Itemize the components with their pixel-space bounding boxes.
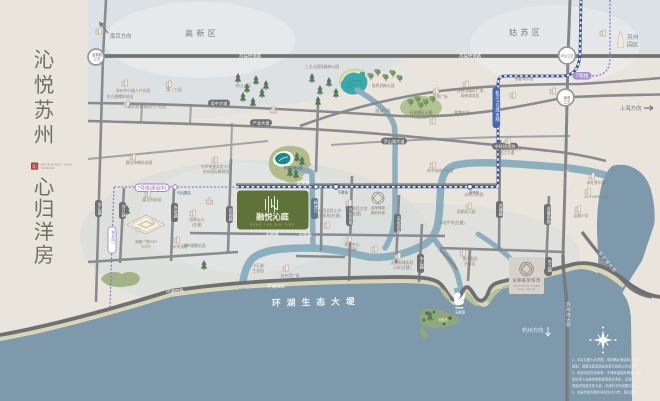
svg-text:水秀天地: 水秀天地 <box>172 244 187 249</box>
svg-text:南京方向: 南京方向 <box>110 32 132 40</box>
svg-text:实验中学(在建): 实验中学(在建) <box>439 220 465 225</box>
svg-text:高新商务区: 高新商务区 <box>461 93 480 98</box>
svg-text:心: 心 <box>34 177 55 199</box>
svg-text:规划、道路及配套信息来源于政府公示文件；: 规划、道路及配套信息来源于政府公示文件； <box>572 364 638 369</box>
svg-text:东吴路: 东吴路 <box>173 204 179 219</box>
svg-text:东山路: 东山路 <box>419 255 425 270</box>
svg-text:吴中站: 吴中站 <box>469 190 480 195</box>
svg-text:尹山立交: 尹山立交 <box>561 53 575 58</box>
svg-text:横山申韩科务园: 横山申韩科务园 <box>126 160 153 165</box>
svg-text:子胥路: 子胥路 <box>298 232 312 239</box>
svg-text:塔韵路: 塔韵路 <box>228 207 234 222</box>
svg-text:JINLING HUICUI YUEWAN: JINLING HUICUI YUEWAN <box>513 285 540 288</box>
svg-text:立交: 立交 <box>94 56 101 61</box>
svg-text:天鹅岛: 天鹅岛 <box>438 317 448 322</box>
svg-text:上方山国家森林公园: 上方山国家森林公园 <box>305 64 339 69</box>
svg-text:太湖新城实验: 太湖新城实验 <box>391 260 414 265</box>
svg-text:府最终批准文件为准；本资料不构成要约内容。: 府最终批准文件为准；本资料不构成要约内容。 <box>572 383 641 388</box>
svg-text:(规划中): (规划中) <box>110 230 115 244</box>
svg-text:吴中大道: 吴中大道 <box>211 100 229 107</box>
svg-text:吴淞南路: 吴淞南路 <box>396 216 402 235</box>
svg-text:第一工园: 第一工园 <box>166 87 181 92</box>
svg-text:HOTEL · RESORT: HOTEL · RESORT <box>517 289 536 291</box>
svg-text:御府世家: 御府世家 <box>371 210 386 215</box>
svg-text:石湖景区公园: 石湖景区公园 <box>410 110 433 115</box>
svg-text:天鹅湖: 天鹅湖 <box>455 310 465 315</box>
svg-text:苏州科技城现代产业园: 苏州科技城现代产业园 <box>128 104 166 109</box>
svg-text:独墅湖公园: 独墅湖公园 <box>515 76 534 81</box>
svg-text:中环快速实验小学: 中环快速实验小学 <box>201 164 232 169</box>
svg-text:(在建): (在建) <box>351 211 362 216</box>
svg-text:苏州国际教育园: 苏州国际教育园 <box>203 169 230 174</box>
svg-text:QINYUE SUZHOU · XINGUI: QINYUE SUZHOU · XINGUI <box>41 164 73 167</box>
svg-text:何山路站: 何山路站 <box>177 190 191 195</box>
svg-text:7号线(建设中): 7号线(建设中) <box>138 185 167 192</box>
svg-text:生态园: 生态园 <box>252 268 264 273</box>
svg-text:苏: 苏 <box>34 99 55 122</box>
svg-text:环湖生态大堤: 环湖生态大堤 <box>272 295 361 308</box>
svg-text:JD·PARK乐园: JD·PARK乐园 <box>584 194 608 199</box>
svg-text:苏州湾实验小学: 苏州湾实验小学 <box>315 208 342 213</box>
svg-text:苏州湾城市广场: 苏州湾城市广场 <box>457 88 484 93</box>
svg-text:(在建): (在建) <box>192 222 203 227</box>
svg-text:7号线: 7号线 <box>576 73 589 80</box>
svg-text:嘉宝科技园: 嘉宝科技园 <box>143 197 162 202</box>
svg-text:苏州湾大桥: 苏州湾大桥 <box>566 301 572 329</box>
svg-text:张桥赏梅公园: 张桥赏梅公园 <box>372 83 395 88</box>
svg-text:归: 归 <box>34 198 55 221</box>
svg-text:子胥路: 子胥路 <box>265 231 279 238</box>
svg-text:迎春南路: 迎春南路 <box>546 205 552 225</box>
svg-text:平星站: 平星站 <box>338 190 349 195</box>
svg-text:银丰惠农: 银丰惠农 <box>462 256 477 261</box>
svg-text:苏福快速路: 苏福快速路 <box>459 53 482 60</box>
svg-text:尚美中心: 尚美中心 <box>344 242 359 247</box>
svg-text:(在建中): (在建中) <box>141 245 151 249</box>
svg-text:上海方向: 上海方向 <box>620 104 642 112</box>
svg-text:儿童医院(在建): 儿童医院(在建) <box>315 213 341 218</box>
svg-text:州: 州 <box>34 125 55 147</box>
svg-text:苏中电商产业园: 苏中电商产业园 <box>427 168 454 173</box>
svg-text:杭州方向: 杭州方向 <box>522 326 544 334</box>
svg-text:沁: 沁 <box>34 49 55 72</box>
svg-text:姑苏区: 姑苏区 <box>509 27 543 37</box>
svg-text:尹山湖大道: 尹山湖大道 <box>384 138 406 145</box>
svg-text:金陵雅郡: 金陵雅郡 <box>371 205 386 210</box>
svg-text:3、本宣传资料制作时间为2023年，敬请留意。: 3、本宣传资料制作时间为2023年，敬请留意。 <box>572 390 641 395</box>
svg-text:(在建): (在建) <box>347 247 358 252</box>
svg-text:永旺梦乐城: 永旺梦乐城 <box>587 180 606 185</box>
svg-text:郭巷中学: 郭巷中学 <box>454 110 469 115</box>
svg-text:房: 房 <box>34 244 55 267</box>
svg-text:融悦沁庭: 融悦沁庭 <box>256 212 290 222</box>
svg-text:华东师范大学: 华东师范大学 <box>345 206 368 211</box>
svg-text:及出卖人未能控制的原因发生变化，具体以政: 及出卖人未能控制的原因发生变化，具体以政 <box>572 377 639 382</box>
svg-text:YANGFANG: YANGFANG <box>41 167 55 170</box>
svg-text:悦: 悦 <box>34 74 55 97</box>
svg-text:轨交4号线支线: 轨交4号线支线 <box>495 89 501 122</box>
svg-text:苏州湾广场: 苏州湾广场 <box>281 273 300 278</box>
svg-text:立交: 立交 <box>564 99 571 104</box>
svg-text:先导区: 先导区 <box>464 261 476 266</box>
svg-text:金山路: 金山路 <box>97 201 103 216</box>
svg-text:小学(在建): 小学(在建) <box>393 265 411 270</box>
svg-text:吴郡广场TOD: 吴郡广场TOD <box>135 239 157 244</box>
svg-text:吴淞江大道: 吴淞江大道 <box>496 150 515 155</box>
svg-text:东方碧螺科技园: 东方碧螺科技园 <box>107 94 134 99</box>
svg-text:产业大道: 产业大道 <box>253 119 271 126</box>
svg-text:东之路: 东之路 <box>547 258 553 273</box>
svg-text:尧峰路: 尧峰路 <box>498 202 504 217</box>
svg-text:吴郡幼儿园: 吴郡幼儿园 <box>457 209 476 214</box>
svg-text:越溪中学: 越溪中学 <box>375 108 390 113</box>
svg-text:苏州: 苏州 <box>627 33 639 41</box>
svg-text:吴东路: 吴东路 <box>296 180 310 187</box>
svg-text:沁: 沁 <box>32 163 37 169</box>
svg-text:洋: 洋 <box>34 221 55 244</box>
svg-text:园区: 园区 <box>627 42 639 49</box>
svg-text:2、规划内容仅供参考，不排除因政府规划、规定: 2、规划内容仅供参考，不排除因政府规划、规定 <box>572 370 644 375</box>
svg-text:苏州中心城人产业园: 苏州中心城人产业园 <box>116 88 150 93</box>
svg-text:东方大道: 东方大道 <box>565 169 571 190</box>
svg-text:小石湖: 小石湖 <box>252 263 264 268</box>
svg-text:吴郡小学: 吴郡小学 <box>573 213 588 218</box>
svg-text:1、本区位图为示意图，非精确比例绘制，相关: 1、本区位图为示意图，非精确比例绘制，相关 <box>572 357 640 362</box>
svg-text:苏福快速路: 苏福快速路 <box>239 53 262 60</box>
svg-text:环湖湿地公园: 环湖湿地公园 <box>283 165 302 170</box>
svg-text:金陵荟萃悦湾: 金陵荟萃悦湾 <box>512 277 540 284</box>
svg-text:RONG YUE QIN TING: RONG YUE QIN TING <box>250 223 295 227</box>
svg-text:旭辉公元: 旭辉公元 <box>189 217 204 222</box>
svg-text:高新区: 高新区 <box>185 28 219 38</box>
